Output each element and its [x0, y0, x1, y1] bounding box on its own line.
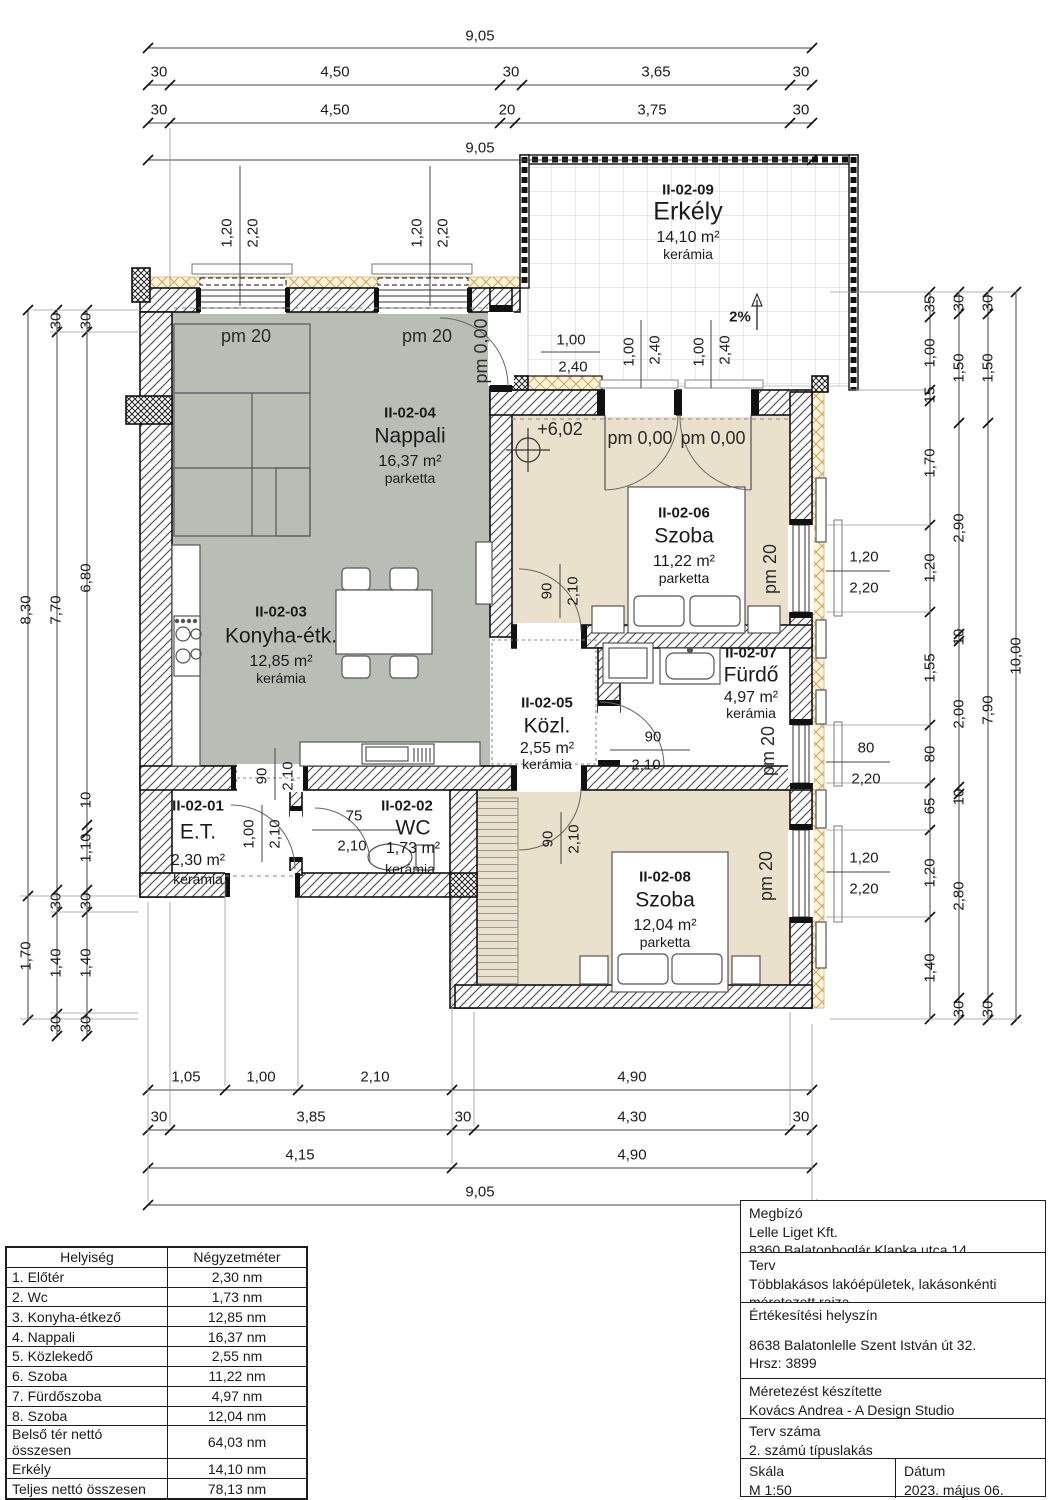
table-row: 6. Szoba11,22 nm [7, 1366, 306, 1386]
scale-value: M 1:50 [749, 1482, 887, 1500]
table-row: Teljes nettó összesen78,13 nm [7, 1478, 306, 1498]
plan-number-label: Terv száma [749, 1423, 1037, 1439]
room-area: 12,04 nm [168, 1407, 306, 1426]
room-area: 64,03 nm [168, 1426, 306, 1458]
title-block-planno: Terv száma 2. számú típuslakás [741, 1419, 1045, 1459]
table-row: Erkély14,10 nm [7, 1458, 306, 1478]
date-cell: Dátum 2023. május 06. [896, 1459, 1012, 1498]
client-address: 8360 Balatonboglár Klapka utca 14. [749, 1242, 1037, 1254]
plan-label: Terv [749, 1257, 1037, 1273]
table-row: 1. Előtér2,30 nm [7, 1267, 306, 1287]
table-row: 2. Wc1,73 nm [7, 1287, 306, 1307]
table-row: 5. Közlekedő2,55 nm [7, 1346, 306, 1366]
room-area: 78,13 nm [168, 1479, 306, 1498]
site-address: 8638 Balatonlelle Szent István út 32. [749, 1337, 1037, 1355]
plan-number: 2. számú típuslakás [749, 1442, 1037, 1459]
room-name: 3. Konyha-étkező [7, 1307, 168, 1326]
room-name: 2. Wc [7, 1288, 168, 1307]
title-block-author: Méretezést készítette Kovács Andrea - A … [741, 1379, 1045, 1419]
room-area: 11,22 nm [168, 1367, 306, 1386]
table-row: Belső tér nettó összesen64,03 nm [7, 1425, 306, 1458]
room-area: 16,37 nm [168, 1327, 306, 1346]
date-value: 2023. május 06. [904, 1482, 1004, 1500]
table-row: 4. Nappali16,37 nm [7, 1326, 306, 1346]
room-name: 1. Előtér [7, 1268, 168, 1287]
title-block-client: Megbízó Lelle Liget Kft. 8360 Balatonbog… [741, 1201, 1045, 1253]
room-area: 14,10 nm [168, 1459, 306, 1478]
table-row: 3. Konyha-étkező12,85 nm [7, 1306, 306, 1326]
table-row: 7. Fürdőszoba4,97 nm [7, 1386, 306, 1406]
room-area: 1,73 nm [168, 1288, 306, 1307]
site-hrsz: Hrsz: 3899 [749, 1355, 1037, 1373]
plan-description: Többlakásos lakóépületek, lakásonkénti [749, 1276, 1037, 1294]
room-name: 4. Nappali [7, 1327, 168, 1346]
title-block-scale-date: Skála M 1:50 Dátum 2023. május 06. [741, 1459, 1045, 1498]
room-area: 2,30 nm [168, 1268, 306, 1287]
room-name: 6. Szoba [7, 1367, 168, 1386]
room-area: 2,55 nm [168, 1347, 306, 1366]
title-block: Megbízó Lelle Liget Kft. 8360 Balatonbog… [740, 1200, 1046, 1497]
table-header-room: Helyiség [7, 1248, 168, 1267]
table-header-row: Helyiség Négyzetméter [7, 1248, 306, 1267]
floor-plan-page: 9,05304,50303,6530304,50203,75309,051,05… [0, 0, 1050, 1500]
title-block-plan: Terv Többlakásos lakóépületek, lakásonké… [741, 1253, 1045, 1303]
author-label: Méretezést készítette [749, 1383, 1037, 1399]
room-name: 7. Fürdőszoba [7, 1387, 168, 1406]
room-name: 8. Szoba [7, 1407, 168, 1426]
room-name: Erkély [7, 1459, 168, 1478]
room-name: 5. Közlekedő [7, 1347, 168, 1366]
author-name: Kovács Andrea - A Design Studio [749, 1402, 1037, 1419]
plan-description-2: méretezett rajza [749, 1294, 1037, 1304]
table-row: 8. Szoba12,04 nm [7, 1406, 306, 1426]
scale-label: Skála [749, 1463, 887, 1479]
area-table: Helyiség Négyzetméter 1. Előtér2,30 nm 2… [5, 1246, 308, 1500]
site-label: Értékesítési helyszín [749, 1307, 1037, 1323]
date-label: Dátum [904, 1463, 1004, 1479]
title-block-site: Értékesítési helyszín 8638 Balatonlelle … [741, 1303, 1045, 1379]
room-area: 12,85 nm [168, 1307, 306, 1326]
client-name: Lelle Liget Kft. [749, 1224, 1037, 1242]
client-label: Megbízó [749, 1205, 1037, 1221]
room-name: Belső tér nettó összesen [7, 1426, 168, 1458]
scale-cell: Skála M 1:50 [741, 1459, 896, 1498]
room-area: 4,97 nm [168, 1387, 306, 1406]
table-header-area: Négyzetméter [168, 1248, 306, 1267]
room-name: Teljes nettó összesen [7, 1479, 168, 1498]
